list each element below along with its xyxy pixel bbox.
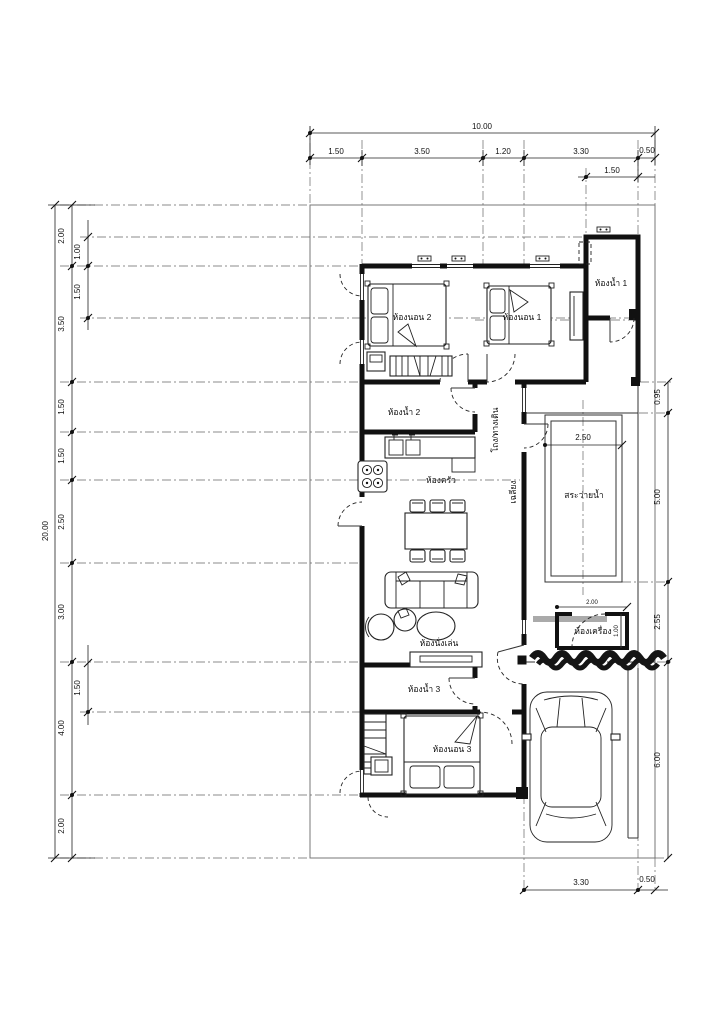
wardrobe-bedroom2	[390, 356, 452, 376]
dim-left-seg-3: 1.50	[57, 399, 66, 415]
wardrobe-bedroom1	[570, 292, 583, 340]
dim-left-seg-5: 2.50	[57, 514, 66, 530]
dim-top-total: 10.00	[472, 122, 493, 131]
dimension-lines	[48, 126, 672, 894]
room-label-pool: สระว่ายน้ำ	[564, 489, 603, 500]
room-label-bedroom3: ห้องนอน 3	[433, 744, 472, 754]
terrace-edges	[524, 382, 655, 838]
kitchen-counter	[385, 435, 475, 472]
dim-left-sub-2: 1.50	[73, 284, 82, 300]
room-label-bath1: ห้องน้ำ 1	[595, 277, 628, 288]
vent-marks	[418, 227, 610, 261]
grid-lines	[60, 126, 672, 890]
room-label-bedroom2: ห้องนอน 2	[393, 312, 432, 322]
room-label-bath2: ห้องน้ำ 2	[388, 406, 421, 417]
dim-left-seg-1: 2.00	[57, 228, 66, 244]
room-label-machine: ห้องเครื่อง	[574, 625, 611, 636]
room-label-bedroom1: ห้องนอน 1	[503, 312, 542, 322]
dim-left-seg-7: 4.00	[57, 720, 66, 736]
room-label-living: ห้องนั่งเล่น	[420, 637, 459, 648]
hedge	[532, 654, 664, 669]
dim-left-seg-8: 2.00	[57, 818, 66, 834]
dim-top-sub: 1.50	[604, 166, 620, 175]
car	[522, 692, 620, 842]
dim-right-seg-4: 6.00	[653, 752, 662, 768]
dim-top-seg-5: 0.50	[639, 146, 655, 155]
room-label-kitchen: ห้องครัว	[426, 475, 456, 485]
dim-top-seg-2: 3.50	[414, 147, 430, 156]
dim-right-seg-2: 5.00	[653, 489, 662, 505]
bed-bedroom3	[401, 713, 483, 796]
dim-left-total: 20.00	[41, 520, 50, 541]
dim-top-seg-1: 1.50	[328, 147, 344, 156]
room-label-hall: โถง/ทางเดิน	[490, 407, 500, 452]
room-label-bath3: ห้องน้ำ 3	[408, 683, 441, 694]
dim-left-seg-2: 3.50	[57, 316, 66, 332]
dim-left-seg-4: 1.50	[57, 448, 66, 464]
dim-left-sub-bottom: 1.50	[73, 680, 82, 696]
dim-bottom-seg-2: 0.50	[639, 875, 655, 884]
dim-bottom-seg-1: 3.30	[573, 878, 589, 887]
floor-plan-svg: 10.00 1.50 3.50 1.20 3.30 0.50 1.50 20.0…	[0, 0, 724, 1024]
coffee-table	[417, 612, 455, 640]
dim-left-seg-6: 3.00	[57, 604, 66, 620]
dim-right-seg-1: 0.95	[653, 389, 662, 405]
dim-top-seg-4: 3.30	[573, 147, 589, 156]
room-label-porch: เฉลียง	[508, 480, 518, 503]
dim-left-sub-1: 1.00	[73, 244, 82, 260]
sofa	[385, 572, 478, 608]
tv-cabinet	[410, 652, 482, 667]
armchairs	[365, 608, 416, 640]
dim-machine-depth: 1.00	[614, 625, 620, 637]
dim-top-seg-3: 1.20	[495, 147, 511, 156]
furniture	[358, 281, 664, 842]
dim-machine-width: 2.00	[586, 600, 598, 606]
dim-pool-width: 2.50	[575, 433, 591, 442]
dining-table	[405, 500, 467, 562]
dim-right-seg-3: 2.55	[653, 614, 662, 630]
stove	[358, 461, 387, 492]
